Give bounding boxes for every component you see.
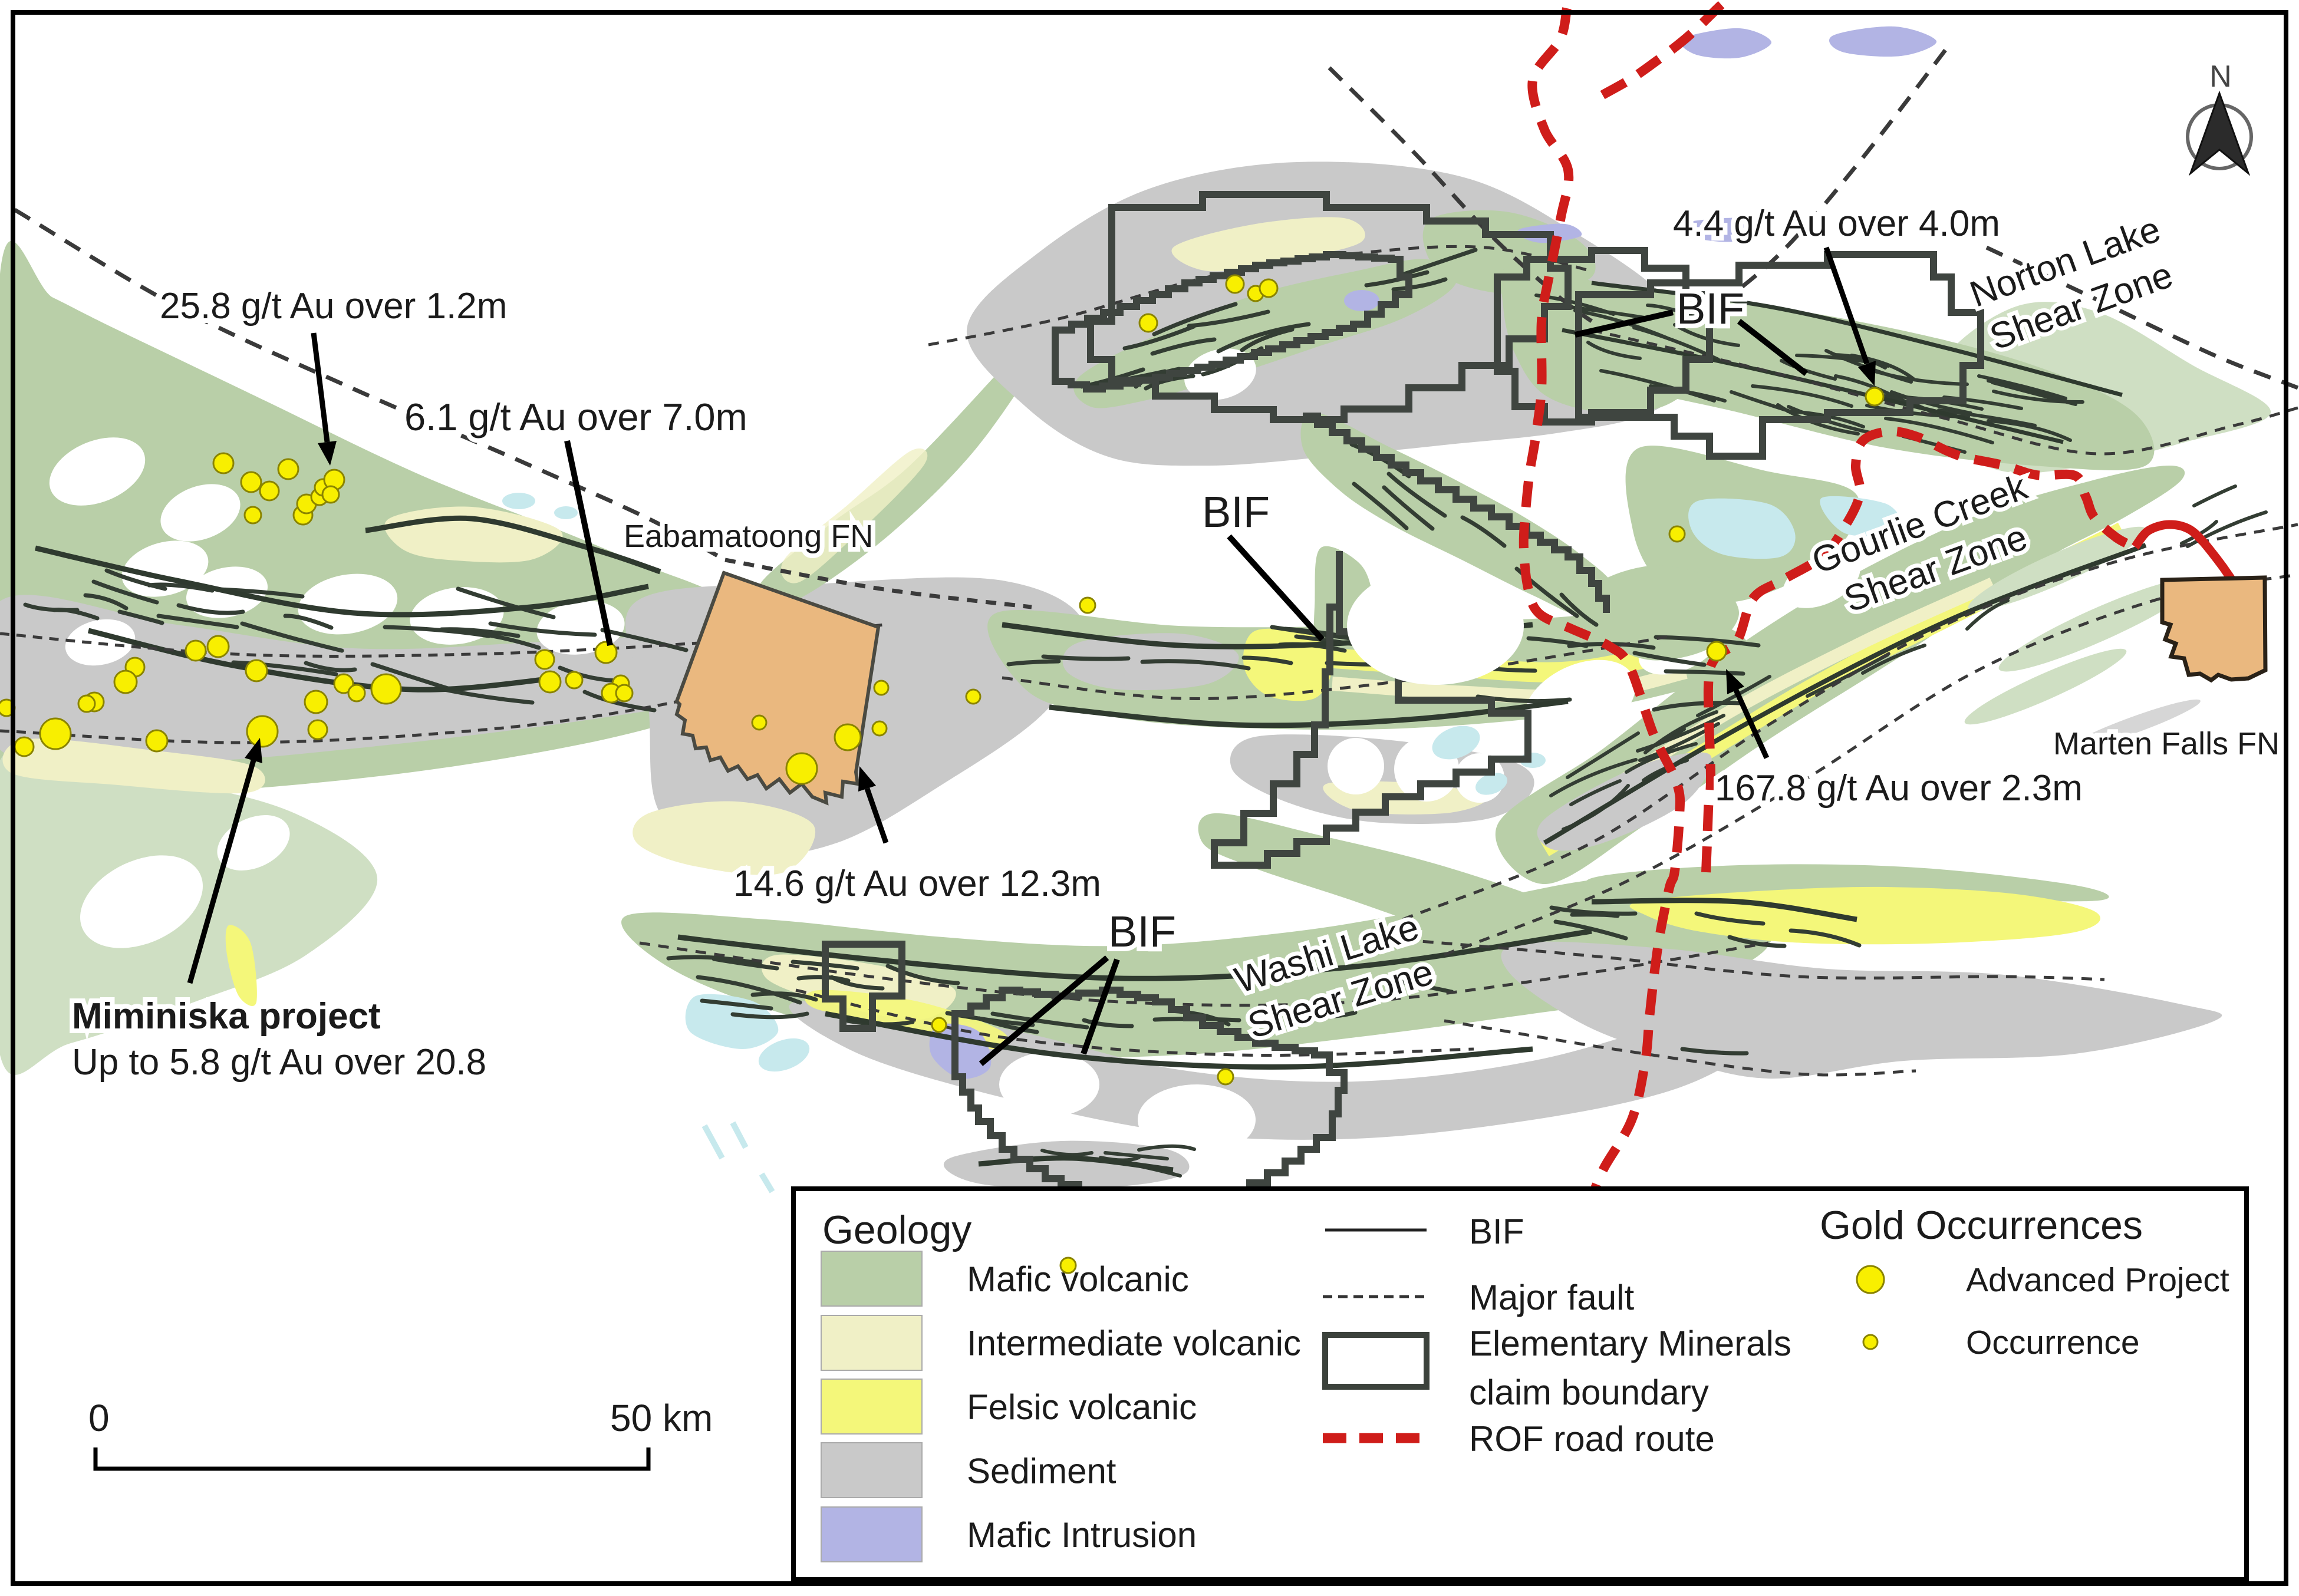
svg-text:claim boundary: claim boundary [1469,1373,1709,1412]
svg-text:Advanced Project: Advanced Project [1966,1261,2229,1299]
svg-text:BIF: BIF [1677,284,1744,333]
svg-text:Eabamatoong FN: Eabamatoong FN [624,519,873,554]
svg-text:ROF road route: ROF road route [1469,1419,1715,1459]
svg-text:Gold Occurrences: Gold Occurrences [1820,1203,2143,1248]
svg-text:Occurrence: Occurrence [1966,1324,2140,1361]
svg-text:Intermediate volcanic: Intermediate volcanic [967,1324,1301,1363]
svg-text:6.1 g/t Au over 7.0m: 6.1 g/t Au over 7.0m [404,395,747,438]
svg-text:0: 0 [88,1397,110,1439]
svg-text:25.8 g/t Au over 1.2m: 25.8 g/t Au over 1.2m [160,286,507,327]
svg-text:Up to 5.8 g/t Au over 20.8: Up to 5.8 g/t Au over 20.8 [72,1042,486,1083]
svg-text:BIF: BIF [1469,1212,1524,1251]
svg-text:167.8 g/t Au over 2.3m: 167.8 g/t Au over 2.3m [1715,768,2083,809]
svg-text:50 km: 50 km [610,1397,713,1439]
svg-text:Elementary Minerals: Elementary Minerals [1469,1324,1791,1363]
svg-text:Geology: Geology [822,1208,971,1252]
svg-text:BIF: BIF [1108,907,1176,956]
svg-text:Marten Falls FN: Marten Falls FN [2053,726,2280,761]
svg-text:14.6 g/t Au over 12.3m: 14.6 g/t Au over 12.3m [733,863,1101,904]
svg-text:Felsic volcanic: Felsic volcanic [967,1387,1197,1427]
svg-text:Miminiska project: Miminiska project [72,996,381,1037]
svg-text:BIF: BIF [1202,487,1270,536]
svg-text:Sediment: Sediment [967,1452,1116,1491]
svg-text:Mafic volcanic: Mafic volcanic [967,1259,1189,1299]
svg-text:N: N [2209,60,2232,94]
svg-text:4.4 g/t Au over 4.0m: 4.4 g/t Au over 4.0m [1673,203,2000,244]
svg-text:Mafic Intrusion: Mafic Intrusion [967,1515,1197,1555]
svg-text:Major fault: Major fault [1469,1278,1634,1317]
